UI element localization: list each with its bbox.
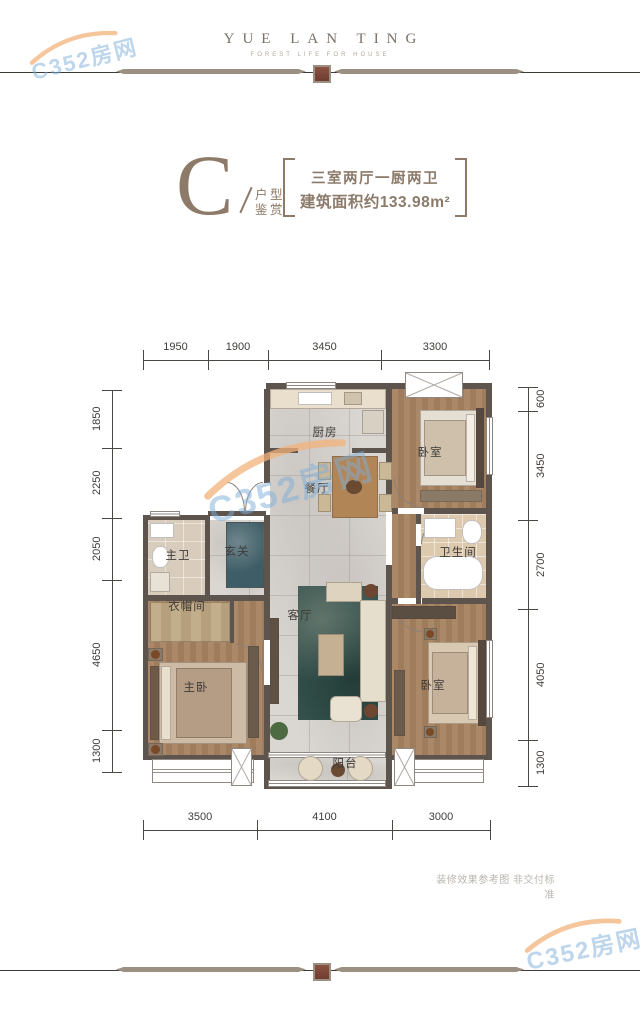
dim-tick bbox=[102, 448, 122, 449]
armchair bbox=[330, 696, 362, 722]
lamp-icon bbox=[426, 630, 434, 638]
dim-tick bbox=[268, 350, 269, 370]
dim-tick bbox=[102, 580, 122, 581]
wall bbox=[264, 515, 270, 600]
headboard bbox=[478, 640, 486, 726]
watermark-1: C352房网 bbox=[28, 29, 141, 86]
window bbox=[486, 417, 493, 475]
coffee-table bbox=[318, 634, 344, 676]
room-label-bedroom-top: 卧室 bbox=[418, 444, 443, 460]
tv-cabinet bbox=[270, 618, 279, 704]
dim-tick bbox=[489, 350, 490, 370]
dim-tick bbox=[257, 820, 258, 840]
dim-right-value: 600 bbox=[534, 375, 548, 423]
bathroom-sink bbox=[424, 518, 456, 538]
pillows bbox=[466, 414, 475, 482]
room-label-master-bedroom: 主卧 bbox=[184, 679, 209, 695]
side-table bbox=[364, 584, 378, 598]
footnote: 装修效果参考图 非交付标准 bbox=[430, 871, 555, 901]
room-label-bathroom: 卫生间 bbox=[439, 544, 477, 560]
pillows bbox=[161, 666, 171, 740]
toilet bbox=[462, 520, 482, 544]
pillows bbox=[468, 646, 477, 720]
floor-corridor bbox=[392, 514, 416, 598]
dim-tick bbox=[143, 820, 144, 840]
dim-tick bbox=[518, 609, 538, 610]
dim-bottom-value: 3500 bbox=[176, 811, 224, 823]
wall bbox=[416, 546, 421, 604]
wall bbox=[143, 515, 148, 760]
console bbox=[420, 490, 482, 502]
wall bbox=[143, 595, 270, 601]
equipment-platform-icon bbox=[405, 372, 463, 398]
dim-tick bbox=[518, 520, 538, 521]
dim-top-value: 1900 bbox=[214, 341, 262, 353]
wall bbox=[205, 520, 210, 598]
bench bbox=[326, 582, 362, 602]
sofa bbox=[360, 600, 386, 702]
divider-ornament-icon bbox=[313, 963, 331, 981]
wall bbox=[386, 565, 392, 755]
headboard bbox=[476, 408, 484, 488]
room-label-living: 客厅 bbox=[288, 607, 313, 623]
dim-bottom-line bbox=[143, 830, 490, 831]
dim-left-value: 4650 bbox=[90, 631, 104, 679]
dim-bottom-value: 3000 bbox=[417, 811, 465, 823]
side-table bbox=[364, 704, 378, 718]
wall bbox=[392, 508, 398, 514]
lamp-icon bbox=[426, 728, 434, 736]
room-label-balcony: 阳台 bbox=[333, 755, 358, 771]
stove bbox=[344, 392, 362, 405]
dresser bbox=[394, 670, 405, 736]
fridge bbox=[362, 410, 384, 434]
wall bbox=[230, 601, 234, 643]
wall bbox=[424, 508, 486, 514]
balcony-chair bbox=[298, 756, 323, 781]
dim-bottom-value: 4100 bbox=[301, 811, 349, 823]
room-label-master-bath: 主卫 bbox=[166, 547, 191, 563]
dim-right-line bbox=[528, 387, 529, 786]
window bbox=[150, 511, 180, 517]
dim-top-value: 1950 bbox=[152, 341, 200, 353]
dim-tick bbox=[392, 820, 393, 840]
wall bbox=[386, 389, 392, 504]
dim-right-value: 1300 bbox=[534, 739, 548, 787]
dresser bbox=[248, 646, 259, 738]
room-label-cloakroom: 衣帽间 bbox=[168, 598, 206, 614]
dim-tick bbox=[102, 390, 122, 391]
headboard bbox=[150, 666, 159, 740]
dim-tick bbox=[490, 820, 491, 840]
dim-tick bbox=[208, 350, 209, 370]
dim-tick bbox=[102, 518, 122, 519]
dim-right-value: 4050 bbox=[534, 651, 548, 699]
dim-top-line bbox=[143, 360, 489, 361]
dim-right-value: 2700 bbox=[534, 541, 548, 589]
kitchen-sink bbox=[298, 392, 332, 405]
plant-icon bbox=[270, 722, 288, 740]
flue-icon bbox=[394, 748, 415, 786]
dim-left-value: 1300 bbox=[90, 727, 104, 775]
room-label-bedroom-bottom: 卧室 bbox=[421, 677, 446, 693]
balcony-door-window bbox=[268, 752, 386, 758]
bathtub bbox=[423, 556, 483, 590]
wall bbox=[416, 514, 421, 524]
dim-tick bbox=[102, 730, 122, 731]
dining-chair bbox=[379, 462, 392, 480]
floorplan: 1950190034503300350041003000185022502050… bbox=[0, 0, 640, 1022]
shower bbox=[150, 572, 170, 592]
window bbox=[486, 640, 493, 718]
divider-bar bbox=[334, 967, 524, 972]
lamp-icon bbox=[151, 650, 160, 659]
lamp-icon bbox=[151, 745, 160, 754]
dim-top-value: 3450 bbox=[301, 341, 349, 353]
dim-left-value: 1850 bbox=[90, 395, 104, 443]
wall bbox=[422, 598, 486, 604]
wall bbox=[386, 755, 392, 787]
bathroom-sink bbox=[150, 523, 174, 538]
dim-right-value: 3450 bbox=[534, 442, 548, 490]
dim-left-value: 2250 bbox=[90, 459, 104, 507]
dim-tick bbox=[381, 350, 382, 370]
balcony-window bbox=[268, 780, 386, 787]
window bbox=[286, 382, 336, 389]
flue-icon bbox=[231, 748, 252, 786]
console bbox=[392, 606, 456, 619]
dining-chair bbox=[379, 494, 392, 512]
room-label-foyer: 玄关 bbox=[225, 543, 250, 559]
divider-bar bbox=[116, 967, 306, 972]
dim-tick bbox=[143, 350, 144, 370]
page: YUE LAN TING FOREST LIFE FOR HOUSE C 户型 … bbox=[0, 0, 640, 1022]
dim-left-value: 2050 bbox=[90, 525, 104, 573]
dim-tick bbox=[102, 772, 122, 773]
dim-top-value: 3300 bbox=[411, 341, 459, 353]
